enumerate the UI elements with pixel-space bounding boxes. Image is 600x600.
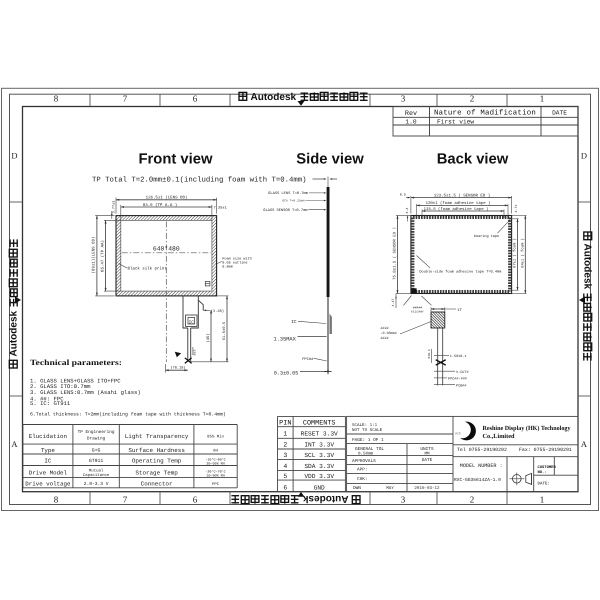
svg-text:(45): (45): [206, 333, 211, 342]
svg-text:Autodesk: Autodesk: [251, 92, 297, 103]
svg-text:1: 1: [283, 431, 287, 438]
svg-text:bearing tape: bearing tape: [474, 234, 499, 239]
svg-text:Black silk print: Black silk print: [128, 267, 168, 272]
svg-text:COMMENTS: COMMENTS: [303, 419, 336, 427]
svg-text:8: 8: [54, 93, 59, 103]
svg-text:RXC-GG35614ZA-1.0: RXC-GG35614ZA-1.0: [454, 477, 501, 483]
svg-text:2: 2: [470, 494, 475, 504]
svg-text:5±0.3: 5±0.3: [427, 349, 431, 358]
svg-text:PIN: PIN: [279, 419, 291, 427]
svg-text:Connector: Connector: [141, 481, 173, 488]
svg-text:Back view: Back view: [437, 152, 509, 168]
svg-text:4.71: 4.71: [514, 205, 518, 213]
svg-text:0.5: 0.5: [400, 192, 406, 197]
svg-text:OCA T=0.25mm: OCA T=0.25mm: [282, 199, 304, 203]
svg-text:GLASS LENS T=0.7mm: GLASS LENS T=0.7mm: [268, 191, 309, 196]
svg-text:2: 2: [283, 442, 287, 449]
svg-text:First view: First view: [437, 118, 474, 125]
svg-text:GND: GND: [314, 484, 325, 491]
svg-text:Capacitance: Capacitance: [83, 473, 110, 478]
svg-text:TP Engineering: TP Engineering: [78, 429, 115, 435]
svg-text:20~95% RH: 20~95% RH: [206, 462, 224, 467]
svg-text:GLASS SENSOR T=0.7mm: GLASS SENSOR T=0.7mm: [263, 208, 308, 213]
svg-text:sticker: sticker: [411, 309, 424, 313]
svg-text:A: A: [581, 439, 588, 449]
svg-text:D: D: [581, 151, 587, 161]
svg-text:67±1 ( foam ): 67±1 ( foam ): [513, 238, 518, 268]
svg-text:1.50±0.1: 1.50±0.1: [450, 354, 467, 359]
svg-text:APPROVALS: APPROVALS: [352, 459, 376, 464]
svg-text:7.35±1: 7.35±1: [214, 205, 228, 210]
svg-text:85% Min: 85% Min: [207, 435, 224, 440]
svg-text:Storage Temp: Storage Temp: [135, 470, 178, 477]
svg-text:Technical parameters:: Technical parameters:: [30, 358, 122, 367]
svg-text:0.50mm: 0.50mm: [358, 452, 374, 457]
svg-text:8±3: 8±3: [192, 350, 196, 356]
svg-text:Tel 0755-29190292: Tel 0755-29190292: [457, 447, 507, 453]
svg-text:FPC##-###: FPC##-###: [448, 377, 467, 382]
svg-text:Side view: Side view: [296, 152, 364, 168]
svg-text:65.47 (TP AA): 65.47 (TP AA): [100, 240, 105, 272]
svg-text:7: 7: [123, 494, 128, 504]
svg-text:3: 3: [283, 452, 287, 459]
svg-text:0.3±0.05: 0.3±0.05: [274, 370, 298, 376]
svg-text:UNITS: UNITS: [420, 447, 434, 452]
svg-text:SCL 3.3V: SCL 3.3V: [304, 452, 334, 459]
svg-text:6: 6: [283, 484, 287, 491]
svg-text:DATE: DATE: [422, 458, 433, 463]
svg-text:(89±1)(LENS OD): (89±1)(LENS OD): [92, 237, 97, 274]
svg-text:6.Total thickness: T=2mm(inclu: 6.Total thickness: T=2mm(including foam …: [30, 411, 226, 417]
svg-text:Front view: Front view: [139, 152, 213, 168]
svg-text:Light Transparency: Light Transparency: [125, 433, 189, 440]
svg-text:SDA 3.3V: SDA 3.3V: [304, 463, 334, 470]
svg-text:1: 1: [540, 494, 545, 504]
svg-text:DATE: DATE: [552, 110, 567, 117]
svg-text:R S: R S: [456, 432, 461, 436]
svg-text:APP:: APP:: [357, 468, 368, 473]
svg-text:2019-03-12: 2019-03-12: [414, 486, 440, 491]
svg-text:1.35MAX: 1.35MAX: [274, 336, 297, 342]
svg-text:CHK:: CHK:: [357, 477, 368, 482]
svg-text:Drive Model: Drive Model: [29, 470, 68, 477]
svg-text:6: 6: [193, 93, 198, 103]
svg-text:GT911: GT911: [89, 458, 104, 464]
svg-text:FPC: FPC: [212, 482, 220, 487]
svg-text:Fax: 0755-29190291: Fax: 0755-29190291: [519, 447, 572, 453]
svg-text:Surface Hardness: Surface Hardness: [128, 447, 185, 454]
svg-text:10~90% RH: 10~90% RH: [206, 474, 224, 479]
svg-text:MM: MM: [424, 452, 430, 457]
svg-text:Elucidation: Elucidation: [29, 433, 67, 440]
svg-text:Double-side foam adhesive tape: Double-side foam adhesive tape T=0.4mm: [419, 269, 501, 274]
svg-text:NO.:: NO.:: [538, 470, 547, 475]
svg-text:Drive voltage: Drive voltage: [25, 481, 71, 488]
svg-text:75.8±1.5 ( SENSOR ED ): 75.8±1.5 ( SENSOR ED ): [392, 227, 397, 280]
svg-text:NOT TO SCALE: NOT TO SCALE: [352, 428, 383, 433]
svg-text:####: ####: [381, 336, 389, 341]
svg-text:1: 1: [540, 93, 545, 103]
svg-text:(3.28): (3.28): [211, 309, 224, 314]
svg-text:126.5±1 (LENS OD): 126.5±1 (LENS OD): [146, 196, 188, 201]
svg-text:PCB##: PCB##: [456, 383, 467, 388]
svg-text:Co.,Limited: Co.,Limited: [483, 433, 515, 440]
svg-text:CUSTOMER: CUSTOMER: [538, 465, 557, 470]
svg-text:IC: IC: [44, 458, 51, 465]
svg-text:8: 8: [54, 494, 59, 504]
svg-text:A: A: [11, 439, 18, 449]
svg-text:4.47: 4.47: [391, 299, 395, 307]
svg-text:17: 17: [457, 308, 462, 313]
svg-text:3: 3: [401, 494, 406, 504]
svg-text:Reshine Display (HK) Technolog: Reshine Display (HK) Technology: [483, 425, 572, 432]
svg-text:(70.18): (70.18): [170, 366, 185, 371]
svg-text:Drawing: Drawing: [87, 436, 106, 442]
svg-text:120±1 (foam adhesive tape ): 120±1 (foam adhesive tape ): [426, 201, 491, 206]
svg-text:DATE:: DATE:: [538, 482, 551, 487]
svg-text:Autodesk: Autodesk: [581, 244, 592, 290]
svg-text:DWN: DWN: [353, 486, 361, 491]
svg-text:115.5 (foam adhesive tape ): 115.5 (foam adhesive tape ): [424, 207, 489, 212]
svg-text:-0.08mm#: -0.08mm#: [381, 331, 397, 336]
svg-text:640*480: 640*480: [153, 246, 180, 253]
svg-text:3.77±1: 3.77±1: [112, 201, 117, 214]
svg-text:Autodesk: Autodesk: [303, 493, 349, 504]
svg-text:64±1 ( foam ): 64±1 ( foam ): [521, 238, 526, 268]
svg-text:PAGE: 1 OF 1: PAGE: 1 OF 1: [352, 438, 384, 443]
svg-text:Autodesk: Autodesk: [9, 311, 20, 357]
svg-text:4.4: 4.4: [405, 208, 409, 214]
svg-text:INT 3.3V: INT 3.3V: [304, 442, 334, 449]
svg-text:2: 2: [470, 93, 475, 103]
svg-text:4: 4: [283, 463, 287, 470]
svg-text:0.8mm: 0.8mm: [222, 264, 233, 269]
svg-text:6: 6: [193, 494, 198, 504]
svg-text:GENERAL TOL: GENERAL TOL: [355, 447, 384, 452]
svg-text:IC: IC: [189, 321, 195, 326]
svg-text:61.5±0.5: 61.5±0.5: [222, 321, 227, 340]
svg-text:7: 7: [123, 93, 128, 103]
svg-text:V-CUT#: V-CUT#: [456, 370, 469, 375]
svg-text:83.9 (TP A.A ): 83.9 (TP A.A ): [143, 203, 177, 208]
svg-text:Nature of Madification: Nature of Madification: [434, 109, 536, 118]
svg-text:VDD 3.3V: VDD 3.3V: [304, 473, 334, 480]
svg-text:SCALE: 1:1: SCALE: 1:1: [352, 423, 378, 428]
svg-text:Rev: Rev: [405, 110, 417, 118]
svg-text:TP Total T=2.0mm±0.1(includin: TP Total T=2.0mm±0.1(including foam with…: [92, 175, 307, 184]
svg-text:Mutual: Mutual: [89, 468, 104, 473]
svg-text:RESET 3.3V: RESET 3.3V: [301, 431, 338, 438]
svg-text:6H: 6H: [213, 448, 218, 453]
svg-text:2.8-3.3 V: 2.8-3.3 V: [84, 481, 109, 487]
svg-text:MODEL NUMBER :: MODEL NUMBER :: [460, 463, 503, 469]
svg-text:Operating Temp: Operating Temp: [132, 458, 182, 465]
svg-text:1.0: 1.0: [405, 118, 416, 125]
svg-text:FPC##: FPC##: [302, 357, 314, 362]
svg-text:123.5±1.5 ( SENSOR ED ): 123.5±1.5 ( SENSOR ED ): [434, 193, 491, 198]
svg-text:MAY: MAY: [386, 486, 394, 491]
svg-text:Type: Type: [41, 447, 55, 454]
svg-text:5: 5: [283, 473, 287, 480]
svg-text:D: D: [11, 151, 17, 161]
svg-text:G+G: G+G: [92, 447, 101, 453]
svg-text:IC: IC: [291, 320, 297, 325]
svg-text:5. IC: GT911: 5. IC: GT911: [30, 400, 71, 407]
svg-text:####: ####: [381, 326, 389, 331]
svg-text:3: 3: [401, 93, 406, 103]
